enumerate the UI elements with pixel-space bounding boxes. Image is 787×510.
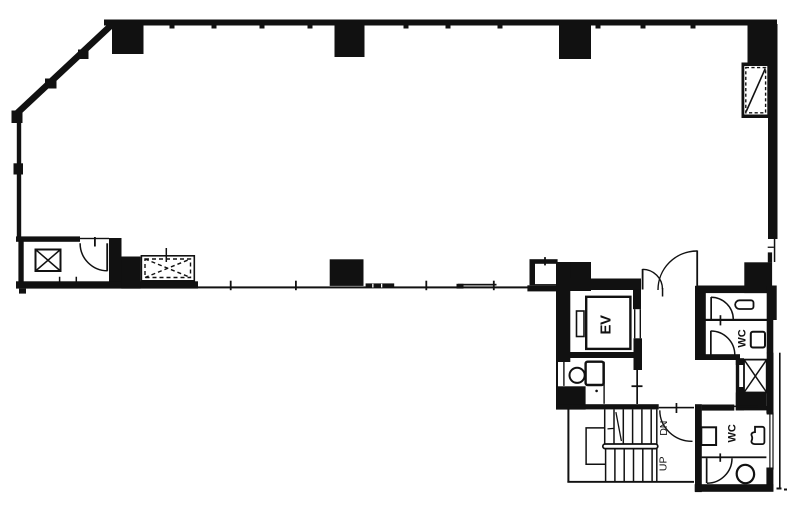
svg-text:WC: WC xyxy=(727,424,739,442)
svg-text:UP: UP xyxy=(657,457,669,472)
svg-text:WC: WC xyxy=(736,329,748,347)
svg-text:EV: EV xyxy=(597,315,614,335)
svg-text:DN: DN xyxy=(658,421,670,436)
